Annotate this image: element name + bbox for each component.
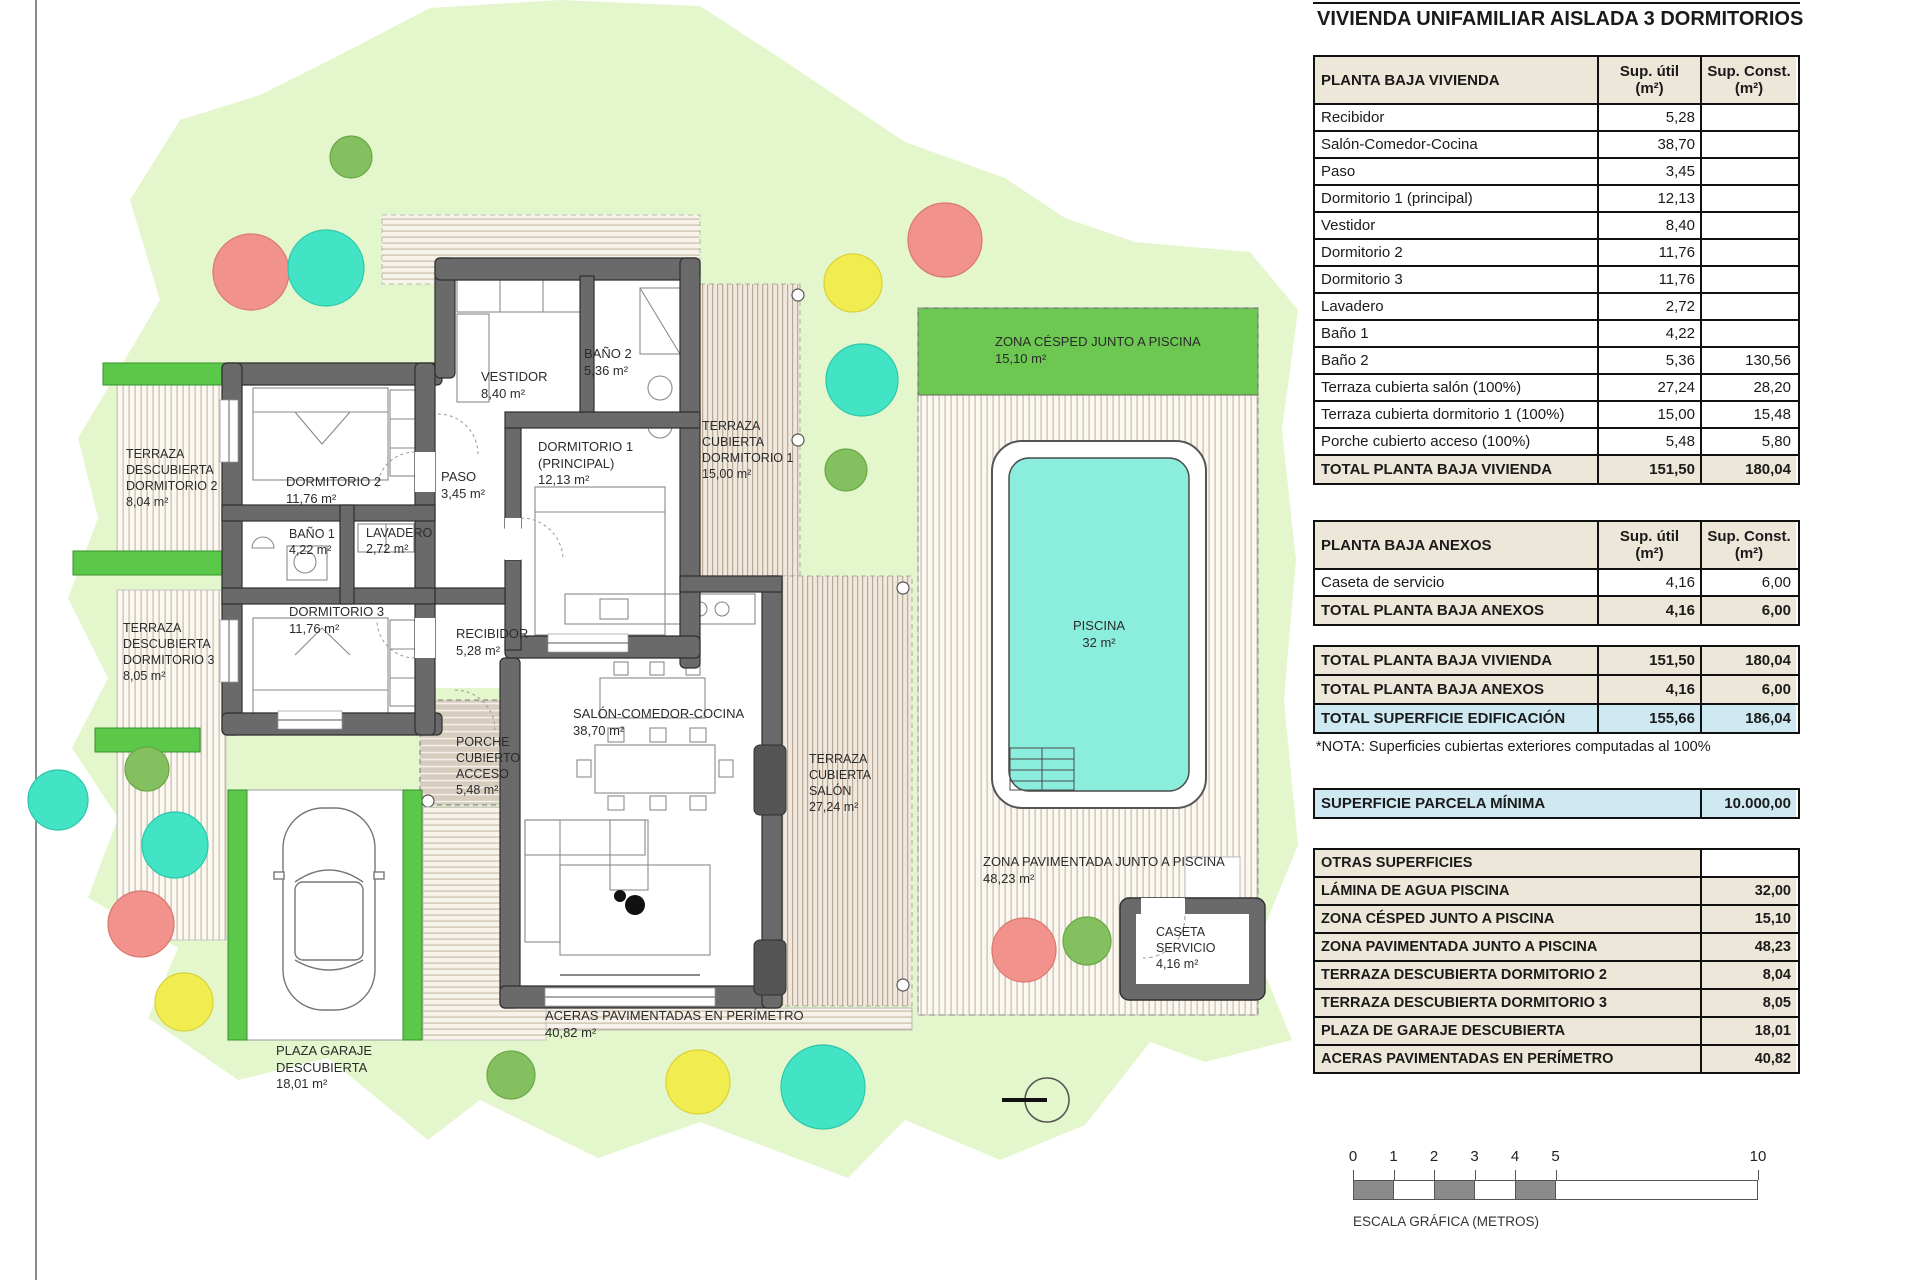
table-cell: PLANTA BAJA ANEXOS — [1315, 522, 1597, 568]
table-row: ACERAS PAVIMENTADAS EN PERÍMETRO40,82 — [1315, 1044, 1798, 1072]
label-dormitorio2: DORMITORIO 2 11,76 m² — [286, 474, 381, 507]
table-cell: 38,70 — [1597, 132, 1700, 157]
table-cell: Dormitorio 2 — [1315, 240, 1597, 265]
table-cell: Terraza cubierta salón (100%) — [1315, 375, 1597, 400]
table-cell: ACERAS PAVIMENTADAS EN PERÍMETRO — [1315, 1046, 1700, 1072]
table-header-row: PLANTA BAJA ANEXOSSup. útil (m²)Sup. Con… — [1315, 522, 1798, 568]
label-aceras: ACERAS PAVIMENTADAS EN PERÍMETRO 40,82 m… — [545, 1008, 804, 1041]
scale-tick-label: 4 — [1511, 1148, 1519, 1165]
table-row: Terraza cubierta salón (100%)27,2428,20 — [1315, 373, 1798, 400]
scale-tick-label: 5 — [1551, 1148, 1559, 1165]
table-cell: TERRAZA DESCUBIERTA DORMITORIO 3 — [1315, 990, 1700, 1016]
nota-text: *NOTA: Superficies cubiertas exteriores … — [1316, 739, 1711, 755]
table-cell: 4,16 — [1597, 676, 1700, 703]
table-cell: TOTAL PLANTA BAJA VIVIENDA — [1315, 647, 1597, 674]
scale-filled-segment — [1515, 1180, 1556, 1200]
table-cell: 6,00 — [1700, 676, 1796, 703]
label-piscina: PISCINA 32 m² — [1073, 618, 1125, 651]
scale-tick-label: 0 — [1349, 1148, 1357, 1165]
table-cell: ZONA PAVIMENTADA JUNTO A PISCINA — [1315, 934, 1700, 960]
table-cell: TERRAZA DESCUBIERTA DORMITORIO 2 — [1315, 962, 1700, 988]
table-cell: Dormitorio 1 (principal) — [1315, 186, 1597, 211]
table-cell — [1700, 321, 1796, 346]
table-row: Vestidor8,40 — [1315, 211, 1798, 238]
table-cell — [1700, 240, 1796, 265]
table-cell: Paso — [1315, 159, 1597, 184]
table-superficie-parcela: SUPERFICIE PARCELA MÍNIMA10.000,00 — [1313, 788, 1800, 819]
table-cell: Sup. Const. (m²) — [1700, 57, 1796, 103]
table-cell: Sup. útil (m²) — [1597, 522, 1700, 568]
table-total-row: TOTAL PLANTA BAJA ANEXOS4,166,00 — [1315, 674, 1798, 703]
table-cell — [1700, 105, 1796, 130]
table-cell: Sup. útil (m²) — [1597, 57, 1700, 103]
table-planta-baja-anexos: PLANTA BAJA ANEXOSSup. útil (m²)Sup. Con… — [1313, 520, 1800, 626]
table-cell: TOTAL SUPERFICIE EDIFICACIÓN — [1315, 705, 1597, 732]
table-row: Paso3,45 — [1315, 157, 1798, 184]
label-terraza-dorm3: TERRAZA DESCUBIERTA DORMITORIO 3 8,05 m² — [123, 620, 214, 684]
table-row: Baño 14,22 — [1315, 319, 1798, 346]
label-plaza-garaje: PLAZA GARAJE DESCUBIERTA 18,01 m² — [276, 1043, 372, 1093]
table-cell: 11,76 — [1597, 240, 1700, 265]
scale-tick-line — [1556, 1170, 1557, 1180]
table-cell: Salón-Comedor-Cocina — [1315, 132, 1597, 157]
table-cell: 40,82 — [1700, 1046, 1796, 1072]
table-cell: 8,04 — [1700, 962, 1796, 988]
table-cell: SUPERFICIE PARCELA MÍNIMA — [1315, 790, 1700, 817]
scale-tick-label: 1 — [1389, 1148, 1397, 1165]
label-paso: PASO 3,45 m² — [441, 469, 485, 502]
table-cell: LÁMINA DE AGUA PISCINA — [1315, 878, 1700, 904]
table-row: Lavadero2,72 — [1315, 292, 1798, 319]
table-cell: 10.000,00 — [1700, 790, 1796, 817]
table-cell: 11,76 — [1597, 267, 1700, 292]
table-cell: 18,01 — [1700, 1018, 1796, 1044]
car-icon — [274, 808, 384, 1010]
table-cell: 4,16 — [1597, 570, 1700, 595]
table-total-row: TOTAL SUPERFICIE EDIFICACIÓN155,66186,04 — [1315, 703, 1798, 732]
table-cell: 2,72 — [1597, 294, 1700, 319]
page-title: VIVIENDA UNIFAMILIAR AISLADA 3 DORMITORI… — [1317, 8, 1803, 31]
table-cell: 15,10 — [1700, 906, 1796, 932]
table-row: LÁMINA DE AGUA PISCINA32,00 — [1315, 876, 1798, 904]
table-total-row: TOTAL PLANTA BAJA ANEXOS4,166,00 — [1315, 595, 1798, 624]
floor-plan-sheet: TERRAZA DESCUBIERTA DORMITORIO 2 8,04 m²… — [0, 0, 1920, 1280]
scale-tick-line — [1758, 1170, 1759, 1180]
table-cell: 28,20 — [1700, 375, 1796, 400]
table-cell: 5,36 — [1597, 348, 1700, 373]
table-row: Dormitorio 1 (principal)12,13 — [1315, 184, 1798, 211]
table-cell — [1700, 267, 1796, 292]
label-terraza-cubierta-salon: TERRAZA CUBIERTA SALÓN 27,24 m² — [809, 751, 871, 815]
scale-filled-segment — [1434, 1180, 1475, 1200]
scale-tick-line — [1475, 1170, 1476, 1180]
table-cell: TOTAL PLANTA BAJA VIVIENDA — [1315, 456, 1597, 483]
table-cell: 4,22 — [1597, 321, 1700, 346]
table-cell — [1700, 159, 1796, 184]
table-total-row: SUPERFICIE PARCELA MÍNIMA10.000,00 — [1315, 790, 1798, 817]
label-caseta: CASETA SERVICIO 4,16 m² — [1156, 924, 1216, 972]
table-row: Caseta de servicio4,166,00 — [1315, 568, 1798, 595]
table-cell: 151,50 — [1597, 647, 1700, 674]
table-cell: 5,80 — [1700, 429, 1796, 454]
table-row: Dormitorio 311,76 — [1315, 265, 1798, 292]
table-cell: 180,04 — [1700, 647, 1796, 674]
table-cell: Recibidor — [1315, 105, 1597, 130]
table-cell: 15,48 — [1700, 402, 1796, 427]
table-cell: 15,00 — [1597, 402, 1700, 427]
table-cell: 27,24 — [1597, 375, 1700, 400]
table-row: TERRAZA DESCUBIERTA DORMITORIO 38,05 — [1315, 988, 1798, 1016]
table-cell: Terraza cubierta dormitorio 1 (100%) — [1315, 402, 1597, 427]
table-cell: Vestidor — [1315, 213, 1597, 238]
table-cell: 6,00 — [1700, 570, 1796, 595]
table-cell: 4,16 — [1597, 597, 1700, 624]
table-cell: OTRAS SUPERFICIES — [1315, 850, 1700, 876]
table-cell: ZONA CÉSPED JUNTO A PISCINA — [1315, 906, 1700, 932]
table-header-row: OTRAS SUPERFICIES — [1315, 850, 1798, 876]
table-cell — [1700, 213, 1796, 238]
table-cell: Sup. Const. (m²) — [1700, 522, 1796, 568]
scale-bar-outline — [1353, 1180, 1758, 1200]
table-cell: 186,04 — [1700, 705, 1796, 732]
label-dormitorio1: DORMITORIO 1 (PRINCIPAL) 12,13 m² — [538, 439, 633, 489]
table-cell: Caseta de servicio — [1315, 570, 1597, 595]
table-row: ZONA PAVIMENTADA JUNTO A PISCINA48,23 — [1315, 932, 1798, 960]
table-cell — [1700, 294, 1796, 319]
table-cell: TOTAL PLANTA BAJA ANEXOS — [1315, 597, 1597, 624]
table-row: ZONA CÉSPED JUNTO A PISCINA15,10 — [1315, 904, 1798, 932]
label-bano1: BAÑO 1 4,22 m² — [289, 526, 335, 558]
table-cell: Baño 2 — [1315, 348, 1597, 373]
scale-tick-line — [1515, 1170, 1516, 1180]
table-row: TERRAZA DESCUBIERTA DORMITORIO 28,04 — [1315, 960, 1798, 988]
title-rule — [1313, 2, 1800, 4]
label-lavadero: LAVADERO 2,72 m² — [366, 525, 432, 557]
table-cell: Porche cubierto acceso (100%) — [1315, 429, 1597, 454]
table-cell — [1700, 186, 1796, 211]
table-otras-superficies: OTRAS SUPERFICIESLÁMINA DE AGUA PISCINA3… — [1313, 848, 1800, 1074]
table-cell: 130,56 — [1700, 348, 1796, 373]
label-salon: SALÓN-COMEDOR-COCINA 38,70 m² — [573, 706, 744, 739]
table-cell: Baño 1 — [1315, 321, 1597, 346]
scale-tick-line — [1394, 1170, 1395, 1180]
scale-tick-label: 10 — [1750, 1148, 1767, 1165]
table-total-row: TOTAL PLANTA BAJA VIVIENDA151,50180,04 — [1315, 647, 1798, 674]
scale-filled-segment — [1353, 1180, 1394, 1200]
label-dormitorio3: DORMITORIO 3 11,76 m² — [289, 604, 384, 637]
scale-tick-label: 2 — [1430, 1148, 1438, 1165]
scale-tick-label: 3 — [1470, 1148, 1478, 1165]
table-cell: 12,13 — [1597, 186, 1700, 211]
scale-tick-line — [1353, 1170, 1354, 1180]
table-total-row: TOTAL PLANTA BAJA VIVIENDA151,50180,04 — [1315, 454, 1798, 483]
table-row: Recibidor5,28 — [1315, 103, 1798, 130]
table-cell: 180,04 — [1700, 456, 1796, 483]
table-row: PLAZA DE GARAJE DESCUBIERTA18,01 — [1315, 1016, 1798, 1044]
table-cell: TOTAL PLANTA BAJA ANEXOS — [1315, 676, 1597, 703]
table-cell: Lavadero — [1315, 294, 1597, 319]
table-planta-baja-vivienda: PLANTA BAJA VIVIENDASup. útil (m²)Sup. C… — [1313, 55, 1800, 485]
table-row: Baño 25,36130,56 — [1315, 346, 1798, 373]
table-cell — [1700, 850, 1796, 876]
scale-bar-label: ESCALA GRÁFICA (METROS) — [1353, 1214, 1539, 1229]
table-cell — [1700, 132, 1796, 157]
label-zona-cesped: ZONA CÉSPED JUNTO A PISCINA 15,10 m² — [995, 334, 1201, 367]
table-cell: 5,48 — [1597, 429, 1700, 454]
table-cell: 48,23 — [1700, 934, 1796, 960]
table-row: Salón-Comedor-Cocina38,70 — [1315, 130, 1798, 157]
label-porche: PORCHE CUBIERTO ACCESO 5,48 m² — [456, 734, 520, 798]
table-cell: Dormitorio 3 — [1315, 267, 1597, 292]
label-recibidor: RECIBIDOR 5,28 m² — [456, 626, 528, 659]
table-cell: PLANTA BAJA VIVIENDA — [1315, 57, 1597, 103]
table-cell: 32,00 — [1700, 878, 1796, 904]
table-cell: 8,05 — [1700, 990, 1796, 1016]
scale-tick-line — [1434, 1170, 1435, 1180]
table-row: Porche cubierto acceso (100%)5,485,80 — [1315, 427, 1798, 454]
label-vestidor: VESTIDOR 8,40 m² — [481, 369, 547, 402]
table-cell: 6,00 — [1700, 597, 1796, 624]
table-cell: PLAZA DE GARAJE DESCUBIERTA — [1315, 1018, 1700, 1044]
table-resumen-totales: TOTAL PLANTA BAJA VIVIENDA151,50180,04TO… — [1313, 645, 1800, 734]
label-bano2: BAÑO 2 5,36 m² — [584, 346, 632, 379]
table-header-row: PLANTA BAJA VIVIENDASup. útil (m²)Sup. C… — [1315, 57, 1798, 103]
table-cell: 5,28 — [1597, 105, 1700, 130]
graphic-scale-bar: ESCALA GRÁFICA (METROS) 01234510 — [1353, 1148, 1763, 1243]
label-zona-pavimentada: ZONA PAVIMENTADA JUNTO A PISCINA 48,23 m… — [983, 854, 1225, 887]
label-terraza-dorm2: TERRAZA DESCUBIERTA DORMITORIO 2 8,04 m² — [126, 446, 217, 510]
label-terraza-cubierta-dorm1: TERRAZA CUBIERTA DORMITORIO 1 15,00 m² — [702, 418, 793, 482]
table-cell: 151,50 — [1597, 456, 1700, 483]
table-cell: 3,45 — [1597, 159, 1700, 184]
table-cell: 8,40 — [1597, 213, 1700, 238]
table-row: Terraza cubierta dormitorio 1 (100%)15,0… — [1315, 400, 1798, 427]
table-row: Dormitorio 211,76 — [1315, 238, 1798, 265]
table-cell: 155,66 — [1597, 705, 1700, 732]
